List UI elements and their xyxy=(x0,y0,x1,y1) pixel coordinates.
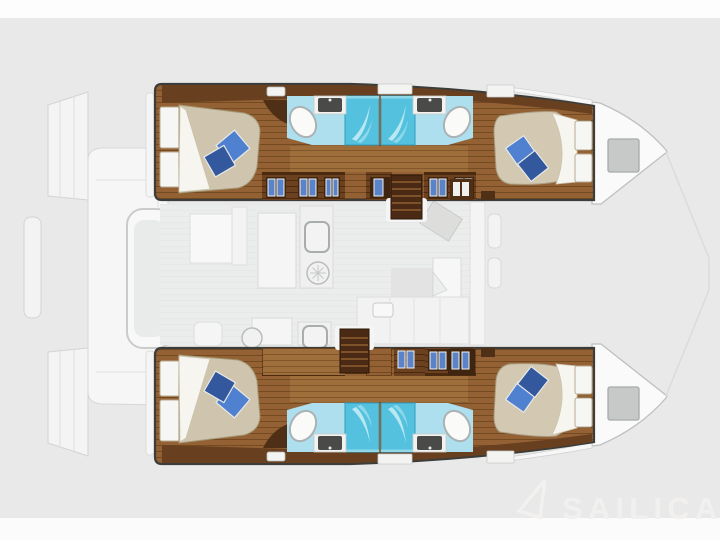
svg-text:SAILICA: SAILICA xyxy=(562,491,720,526)
